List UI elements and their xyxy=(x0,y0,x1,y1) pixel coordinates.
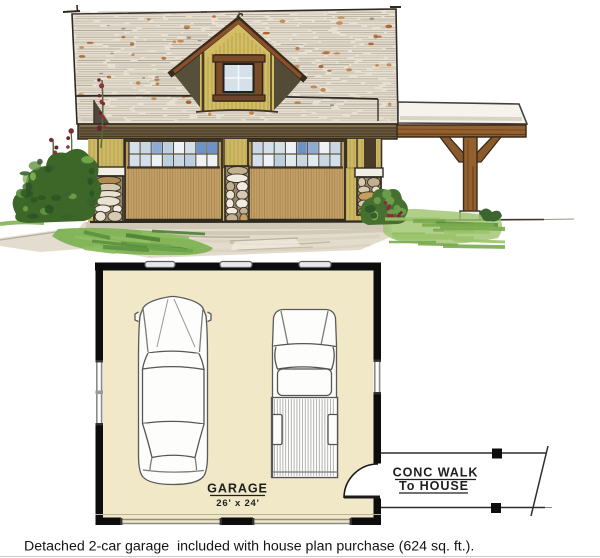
svg-text:GARAGE: GARAGE xyxy=(207,482,268,496)
svg-text:CONC WALK: CONC WALK xyxy=(393,466,479,480)
svg-text:To HOUSE: To HOUSE xyxy=(399,479,469,493)
svg-text:26' x 24': 26' x 24' xyxy=(216,498,259,509)
svg-text:Detached 2-car garage include: Detached 2-car garage included with hous… xyxy=(24,539,474,555)
